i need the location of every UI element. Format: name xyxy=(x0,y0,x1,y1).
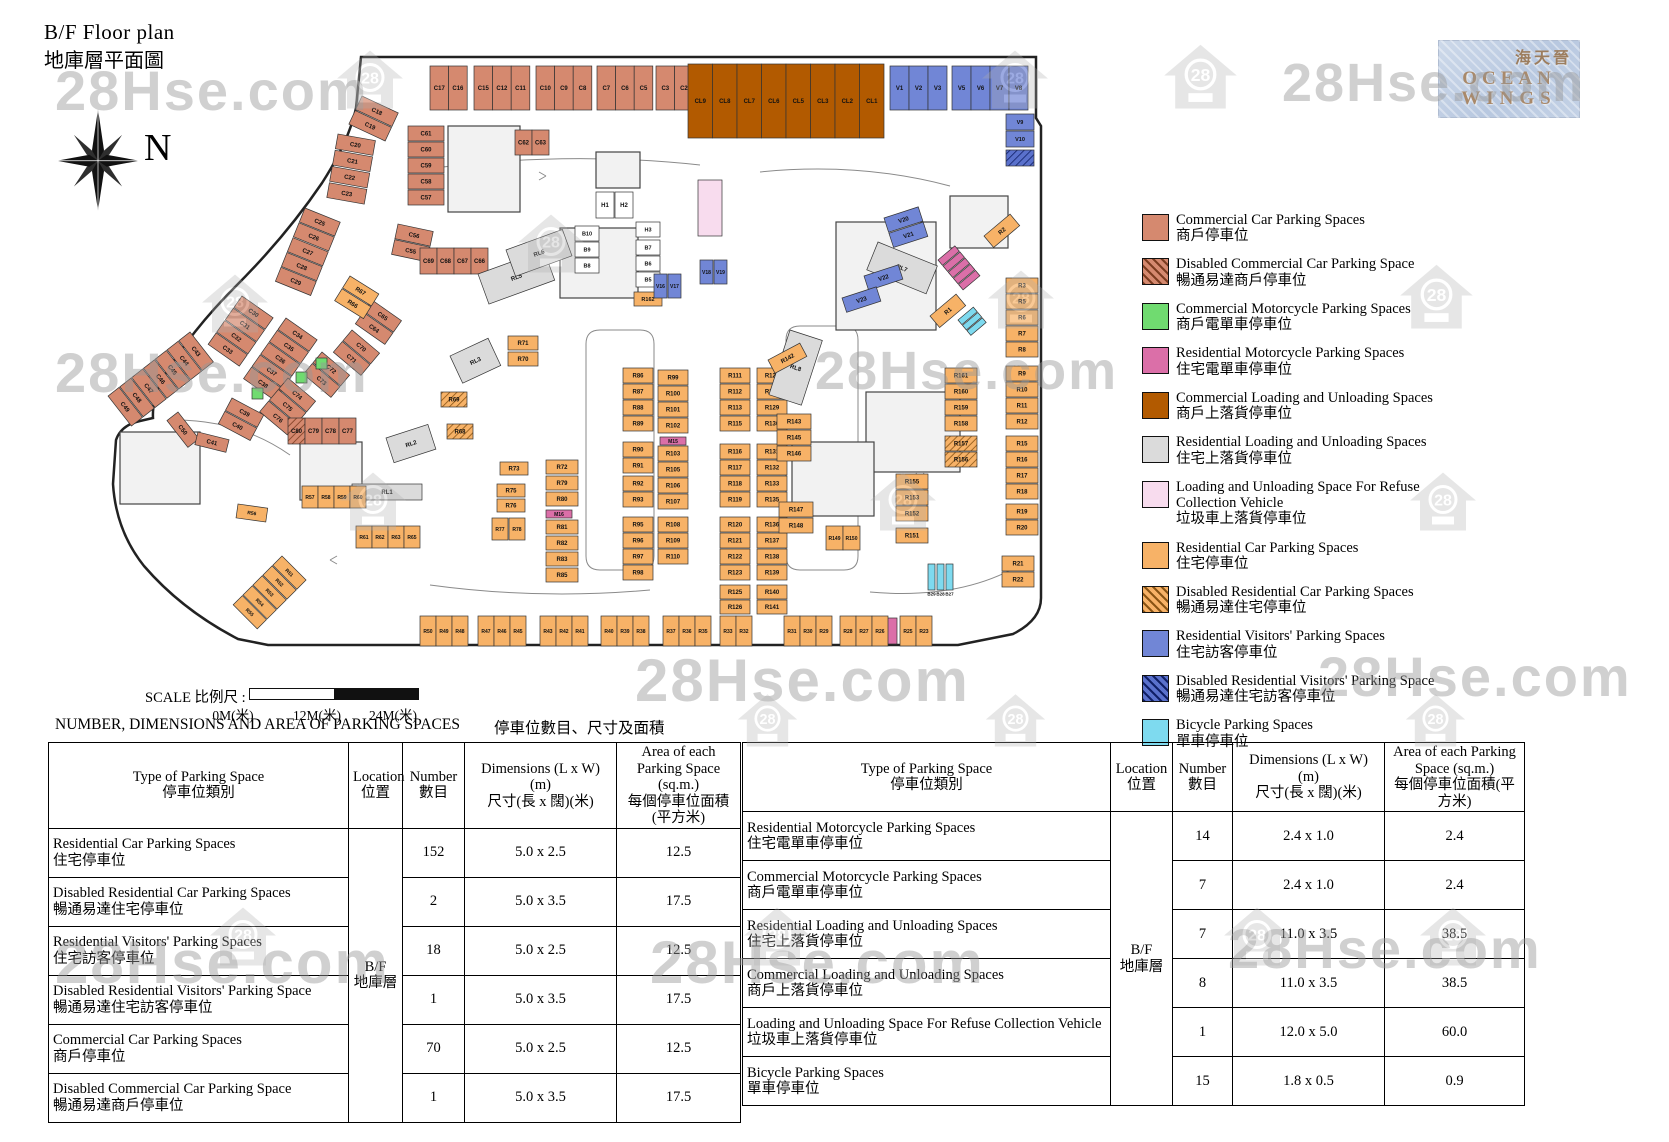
stall-group: R151 xyxy=(896,528,928,543)
stall-label: R156 xyxy=(954,458,969,464)
stall-label: R49 xyxy=(439,629,448,635)
watermark-house-icon: 28 xyxy=(1162,42,1239,116)
stall-label: CL5 xyxy=(793,99,805,105)
stall-label: R99 xyxy=(667,376,679,382)
stall-group: M16 xyxy=(546,510,572,518)
stall-group: R28R27R26 xyxy=(840,616,888,646)
cell-area: 60.0 xyxy=(1385,1008,1525,1057)
stall-group: R50R49R48 xyxy=(420,616,468,646)
development-logo: 海天晉 OCEAN WINGS xyxy=(1438,40,1580,118)
stall-label: R37 xyxy=(666,629,675,635)
stall-group: CL9CL8CL7CL6CL5CL3CL2CL1 xyxy=(688,64,884,138)
stall-label: R88 xyxy=(632,406,644,412)
parking-stall xyxy=(296,372,307,383)
parking-stall xyxy=(316,358,327,369)
col-header-type: Type of Parking Space停車位類別 xyxy=(49,743,349,829)
cell-type: Disabled Commercial Car Parking Space暢通易… xyxy=(49,1073,349,1122)
stall-label: V10 xyxy=(1015,137,1025,143)
stall-label: R96 xyxy=(632,539,644,545)
legend-swatch-icon xyxy=(1142,303,1169,330)
stall-label: R36 xyxy=(682,629,691,635)
legend-item: Disabled Residential Car Parking Spaces暢… xyxy=(1142,584,1472,616)
legend-swatch-icon xyxy=(1142,392,1169,419)
stall-label: R110 xyxy=(666,555,681,561)
stall-label: R43 xyxy=(543,629,552,635)
stall-label: R19 xyxy=(1016,510,1028,516)
stall-label: H2 xyxy=(620,203,628,209)
stall-label: R151 xyxy=(905,534,920,540)
stall-label: R48 xyxy=(455,629,464,635)
stall-label: C16 xyxy=(452,86,464,92)
page-title-en: B/F Floor plan xyxy=(44,20,175,45)
stall-label: R82 xyxy=(556,541,568,547)
cell-area: 12.5 xyxy=(617,926,741,975)
stall-label: H1 xyxy=(601,203,609,209)
stall-label: R133 xyxy=(765,482,780,488)
stall-label: R121 xyxy=(728,539,743,545)
stall-group: R143R145R146 xyxy=(777,414,811,461)
stall-label: R105 xyxy=(666,468,681,474)
stall-label: B9 xyxy=(583,247,590,253)
parking-stall xyxy=(928,564,935,590)
building-core xyxy=(596,152,640,188)
stall-label: C68 xyxy=(440,259,452,265)
stall-label: R30 xyxy=(803,629,812,635)
stall-label: R116 xyxy=(728,450,743,456)
stall-label: R38 xyxy=(636,629,645,635)
stall-label: R10 xyxy=(1016,388,1028,394)
stall-label: R145 xyxy=(787,436,802,442)
stall-group: R68 xyxy=(447,424,473,439)
stall-label: R157 xyxy=(954,442,969,448)
stall-label: R102 xyxy=(666,424,681,430)
stall-group: R108R109R110 xyxy=(658,517,688,564)
stall-label: R126 xyxy=(728,605,743,611)
legend-swatch-icon xyxy=(1142,347,1169,374)
cell-number: 18 xyxy=(403,926,465,975)
stall-label: R45 xyxy=(513,629,522,635)
cell-type: Disabled Residential Car Parking Spaces暢… xyxy=(49,877,349,926)
stall-label: B10 xyxy=(582,231,592,237)
stall-label: CL1 xyxy=(866,99,878,105)
stall-label: C6 xyxy=(621,86,629,92)
stall-label: R160 xyxy=(954,390,969,396)
stall-group: R69 xyxy=(441,392,467,407)
cell-dimensions: 5.0 x 2.5 xyxy=(465,1024,617,1073)
stall-label: R111 xyxy=(728,374,742,380)
cell-dimensions: 5.0 x 2.5 xyxy=(465,926,617,975)
stall-label: R122 xyxy=(728,555,743,561)
stall-label: V2 xyxy=(915,86,923,92)
col-header-area: Area of each Parking Space (sq.m.)每個停車位面… xyxy=(1385,743,1525,812)
logo-name-en-top: OCEAN xyxy=(1438,68,1580,90)
cell-type: Residential Car Parking Spaces住宅停車位 xyxy=(49,828,349,877)
stall-label: C58 xyxy=(420,180,432,186)
stall-label: R11 xyxy=(1017,404,1028,410)
stall-label: R81 xyxy=(556,525,568,531)
stall-label: CL8 xyxy=(719,99,731,105)
stall-label: R71 xyxy=(517,341,529,347)
parking-spaces-table: Type of Parking Space停車位類別Location位置Numb… xyxy=(742,742,1525,1106)
stall-group: C62C63 xyxy=(515,130,549,155)
stall-label: R70 xyxy=(517,357,529,363)
stall-label: V6 xyxy=(977,86,985,92)
cell-dimensions: 2.4 x 1.0 xyxy=(1233,861,1385,910)
stall-label: R5 xyxy=(1018,300,1026,306)
stall-label: C59 xyxy=(420,164,432,170)
stall-label: R77 xyxy=(495,527,504,533)
stall-group: R47R46R45 xyxy=(478,616,526,646)
cell-type: Residential Visitors' Parking Spaces住宅訪客… xyxy=(49,926,349,975)
stall-label: R29 xyxy=(819,629,828,635)
stall-label: R42 xyxy=(559,629,568,635)
stall-group: C79C78C77 xyxy=(305,418,356,444)
stall-label: R22 xyxy=(1012,578,1024,584)
stall-label: R73 xyxy=(508,467,520,473)
stall-label: R148 xyxy=(789,524,804,530)
stall-label: R138 xyxy=(765,555,780,561)
legend-label: Residential Motorcycle Parking Spaces住宅電… xyxy=(1176,345,1404,377)
stall-label: RL1 xyxy=(381,490,393,496)
legend-item: Disabled Residential Visitors' Parking S… xyxy=(1142,673,1472,705)
legend: Commercial Car Parking Spaces商戶停車位Disabl… xyxy=(1142,212,1472,762)
stall-label: R61 xyxy=(359,535,368,541)
stall-label: M15 xyxy=(668,439,678,445)
floor-plan: C17C16C15C12C11C10C9C8C7C6C5C3C2C1CL9CL8… xyxy=(105,48,1045,648)
parking-stall xyxy=(937,564,944,590)
stall-group: C17C16 xyxy=(430,66,467,110)
stall-label: B28 xyxy=(936,592,945,597)
stall-label: R120 xyxy=(728,523,743,529)
stall-label: R16 xyxy=(1016,458,1028,464)
col-header-type: Type of Parking Space停車位類別 xyxy=(743,743,1111,812)
logo-name-en-bottom: WINGS xyxy=(1438,88,1580,110)
cell-dimensions: 1.8 x 0.5 xyxy=(1233,1057,1385,1106)
cell-number: 1 xyxy=(403,1073,465,1122)
stall-label: R39 xyxy=(620,629,629,635)
stall-label: CL2 xyxy=(842,99,854,105)
stall-label: C9 xyxy=(560,86,568,92)
stall-label: R68 xyxy=(454,430,466,436)
stall-group: C61C60C59C58C57 xyxy=(408,126,444,205)
stall-group: V5V6V7V8 xyxy=(952,66,1028,110)
legend-swatch-icon xyxy=(1142,214,1169,241)
stall-label: R83 xyxy=(556,557,568,563)
stall-group: R25R23 xyxy=(900,616,932,646)
col-header-number: Number數目 xyxy=(403,743,465,829)
legend-item: Residential Car Parking Spaces住宅停車位 xyxy=(1142,540,1472,572)
stall-label: C7 xyxy=(602,86,610,92)
stall-label: R46 xyxy=(497,629,506,635)
stall-label: C17 xyxy=(434,86,446,92)
cell-area: 17.5 xyxy=(617,1073,741,1122)
cell-type: Loading and Unloading Space For Refuse C… xyxy=(743,1008,1111,1057)
stall-label: R93 xyxy=(632,498,644,504)
legend-swatch-icon xyxy=(1142,586,1169,613)
stall-label: R155 xyxy=(905,480,920,486)
cell-number: 7 xyxy=(1173,861,1233,910)
stall-label: R135 xyxy=(765,498,780,504)
parking-stall xyxy=(1006,150,1034,166)
stall-label: R78 xyxy=(512,527,521,533)
section-title-en: NUMBER, DIMENSIONS AND AREA OF PARKING S… xyxy=(55,716,460,738)
legend-item: Commercial Car Parking Spaces商戶停車位 xyxy=(1142,212,1472,244)
scale-bar xyxy=(249,688,419,700)
stall-label: C60 xyxy=(420,148,432,154)
stall-label: C77 xyxy=(342,429,354,435)
cell-number: 70 xyxy=(403,1024,465,1073)
stall-group: R57R58R59R60 xyxy=(302,486,366,508)
cell-number: 15 xyxy=(1173,1057,1233,1106)
cell-number: 152 xyxy=(403,828,465,877)
stall-label: R62 xyxy=(375,535,384,541)
stall-label: R90 xyxy=(632,448,644,454)
parking-stall xyxy=(252,388,263,399)
stall-label: C78 xyxy=(325,429,337,435)
stall-label: V17 xyxy=(670,284,679,290)
legend-label: Residential Car Parking Spaces住宅停車位 xyxy=(1176,540,1358,572)
stall-label: R18 xyxy=(1016,490,1028,496)
col-header-dimensions: Dimensions (L x W) (m)尺寸(長 x 闊)(米) xyxy=(1233,743,1385,812)
svg-text:28: 28 xyxy=(759,712,775,728)
stall-label: R109 xyxy=(666,539,681,545)
stall-label: R91 xyxy=(632,464,644,470)
stall-group xyxy=(698,180,722,236)
stall-label: C63 xyxy=(535,141,547,147)
stall-label: R31 xyxy=(787,629,796,635)
stall-label: R153 xyxy=(905,496,920,502)
cell-area: 38.5 xyxy=(1385,959,1525,1008)
parking-spaces-table: Type of Parking Space停車位類別Location位置Numb… xyxy=(48,742,741,1123)
stall-label: R15 xyxy=(1016,442,1028,448)
stall-label: R35 xyxy=(698,629,707,635)
stall-label: R72 xyxy=(556,465,568,471)
legend-label: Disabled Residential Car Parking Spaces暢… xyxy=(1176,584,1414,616)
cell-dimensions: 12.0 x 5.0 xyxy=(1233,1008,1385,1057)
stall-label: C3 xyxy=(661,86,669,92)
section-title: NUMBER, DIMENSIONS AND AREA OF PARKING S… xyxy=(55,716,664,738)
stall-group: R149R150 xyxy=(826,526,860,550)
stall-label: R60 xyxy=(353,495,362,501)
stall-label: B8 xyxy=(583,263,590,269)
stall-label: R146 xyxy=(787,452,802,458)
cell-dimensions: 5.0 x 3.5 xyxy=(465,975,617,1024)
stall-label: R150 xyxy=(846,536,858,542)
stall-label: C2 xyxy=(680,86,688,92)
cell-location: B/F地庫層 xyxy=(349,828,403,1122)
legend-item: Disabled Commercial Car Parking Space暢通易… xyxy=(1142,256,1472,288)
legend-item: Commercial Loading and Unloading Spaces商… xyxy=(1142,390,1472,422)
cell-type: Commercial Loading and Unloading Spaces商… xyxy=(743,959,1111,1008)
stall-label: R161 xyxy=(954,374,969,380)
cell-dimensions: 11.0 x 3.5 xyxy=(1233,959,1385,1008)
parking-stall xyxy=(946,564,953,590)
cell-number: 2 xyxy=(403,877,465,926)
legend-swatch-icon xyxy=(1142,630,1169,657)
stall-label: R152 xyxy=(905,512,920,518)
cell-number: 14 xyxy=(1173,812,1233,861)
cell-number: 7 xyxy=(1173,910,1233,959)
stall-label: R58 xyxy=(321,495,330,501)
stall-label: R162 xyxy=(641,297,654,303)
stall-label: R117 xyxy=(728,466,743,472)
stall-label: R108 xyxy=(666,523,681,529)
stall-label: R7 xyxy=(1018,332,1026,338)
svg-text:28: 28 xyxy=(1007,712,1023,728)
stall-label: C11 xyxy=(515,86,526,92)
cell-number: 1 xyxy=(403,975,465,1024)
parking-stall xyxy=(698,180,722,236)
cell-type: Commercial Motorcycle Parking Spaces商戶電單… xyxy=(743,861,1111,910)
stall-label: V1 xyxy=(896,86,904,92)
stall-label: C67 xyxy=(457,259,469,265)
stall-label: R56 xyxy=(247,510,257,517)
stall-group: R33R32 xyxy=(720,616,752,646)
cell-dimensions: 11.0 x 3.5 xyxy=(1233,910,1385,959)
table-row: Residential Car Parking Spaces住宅停車位B/F地庫… xyxy=(49,828,741,877)
cell-area: 2.4 xyxy=(1385,812,1525,861)
stall-label: CL7 xyxy=(744,99,756,105)
svg-text:28: 28 xyxy=(1191,65,1211,85)
stall-label: R80 xyxy=(556,497,568,503)
stall-label: R136 xyxy=(765,523,780,529)
stall-label: R106 xyxy=(666,484,681,490)
stall-label: R21 xyxy=(1012,562,1024,568)
stall-group: B10B9B8 xyxy=(575,226,599,273)
legend-label: Disabled Commercial Car Parking Space暢通易… xyxy=(1176,256,1414,288)
cell-type: Residential Motorcycle Parking Spaces住宅電… xyxy=(743,812,1111,861)
cell-area: 0.9 xyxy=(1385,1057,1525,1106)
watermark-text: 28Hse.com xyxy=(635,646,970,715)
stall-label: R41 xyxy=(575,629,584,635)
stall-label: R115 xyxy=(728,422,743,428)
stall-label: R25 xyxy=(903,629,912,635)
stall-label: R107 xyxy=(666,500,681,506)
legend-item: Residential Loading and Unloading Spaces… xyxy=(1142,434,1472,466)
stall-label: C8 xyxy=(579,86,587,92)
stall-label: B5 xyxy=(644,277,651,283)
stall-group: R40R39R38 xyxy=(601,616,649,646)
stall-label: R95 xyxy=(632,523,644,529)
stall-label: V7 xyxy=(996,86,1004,92)
stall-label: R28 xyxy=(843,629,852,635)
stall-label: H3 xyxy=(644,227,651,233)
legend-swatch-icon xyxy=(1142,675,1169,702)
stall-label: C62 xyxy=(518,141,530,147)
cell-area: 17.5 xyxy=(617,975,741,1024)
stall-group: C7C6C5 xyxy=(597,66,653,110)
stall-label: R57 xyxy=(305,495,314,501)
legend-item: Commercial Motorcycle Parking Spaces商戶電單… xyxy=(1142,301,1472,333)
parking-table-right: Type of Parking Space停車位類別Location位置Numb… xyxy=(742,742,1524,1106)
stall-label: R147 xyxy=(789,508,804,514)
stall-group: R37R36R35 xyxy=(663,616,711,646)
stall-group: C15C12C11 xyxy=(474,66,530,110)
stall-label: V16 xyxy=(656,284,665,290)
legend-label: Commercial Car Parking Spaces商戶停車位 xyxy=(1176,212,1365,244)
stall-group xyxy=(296,372,307,383)
stall-label: R112 xyxy=(728,390,743,396)
stall-group: H3 xyxy=(636,222,660,237)
stall-group: M15 xyxy=(660,437,686,445)
legend-swatch-icon xyxy=(1142,436,1169,463)
stall-group: R73 xyxy=(500,462,528,475)
cell-dimensions: 5.0 x 3.5 xyxy=(465,1073,617,1122)
stall-label: R33 xyxy=(723,629,732,635)
stall-label: R20 xyxy=(1016,526,1028,532)
stall-label: R17 xyxy=(1016,474,1028,480)
stall-label: R139 xyxy=(765,571,780,577)
col-header-location: Location位置 xyxy=(1111,743,1173,812)
col-header-area: Area of each Parking Space (sq.m.)每個停車位面… xyxy=(617,743,741,829)
stall-label: R101 xyxy=(666,408,681,414)
stall-label: R123 xyxy=(728,571,743,577)
legend-label: Disabled Residential Visitors' Parking S… xyxy=(1176,673,1434,705)
stall-label: R98 xyxy=(632,571,644,577)
stall-label: R75 xyxy=(505,489,517,495)
stall-label: R32 xyxy=(739,629,748,635)
col-header-location: Location位置 xyxy=(349,743,403,829)
stall-label: R59 xyxy=(337,495,346,501)
cell-type: Commercial Car Parking Spaces商戶停車位 xyxy=(49,1024,349,1073)
legend-label: Commercial Motorcycle Parking Spaces商戶電單… xyxy=(1176,301,1411,333)
stall-label: R87 xyxy=(632,390,644,396)
cell-area: 12.5 xyxy=(617,828,741,877)
stall-label: R125 xyxy=(728,590,743,596)
stall-label: R9 xyxy=(1018,372,1026,378)
cell-dimensions: 5.0 x 2.5 xyxy=(465,828,617,877)
stall-group xyxy=(316,358,327,369)
stall-label: B6 xyxy=(644,261,651,267)
stall-label: R89 xyxy=(632,422,644,428)
stall-label: C69 xyxy=(423,259,435,265)
section-title-zh: 停車位數目、尺寸及面積 xyxy=(494,716,665,738)
stall-label: R103 xyxy=(666,452,681,458)
stall-label: R85 xyxy=(556,573,568,579)
stall-label: C61 xyxy=(420,132,432,138)
legend-label: Residential Visitors' Parking Spaces住宅訪客… xyxy=(1176,628,1385,660)
stall-label: C5 xyxy=(640,86,648,92)
legend-label: Commercial Loading and Unloading Spaces商… xyxy=(1176,390,1433,422)
stall-label: R6 xyxy=(1018,316,1026,322)
stall-label: R3 xyxy=(1018,284,1026,290)
stall-label: C79 xyxy=(308,429,320,435)
cell-location: B/F地庫層 xyxy=(1111,812,1173,1106)
stall-group: R3R5R6R7R8 xyxy=(1006,278,1038,357)
stall-label: R40 xyxy=(604,629,613,635)
legend-swatch-icon xyxy=(1142,258,1169,285)
table-row: Residential Motorcycle Parking Spaces住宅電… xyxy=(743,812,1525,861)
stall-label: R12 xyxy=(1016,420,1028,426)
stall-label: R69 xyxy=(448,398,460,404)
stall-label: C66 xyxy=(474,259,486,265)
stall-label: C15 xyxy=(478,86,490,92)
stall-label: CL3 xyxy=(817,99,829,105)
cell-dimensions: 2.4 x 1.0 xyxy=(1233,812,1385,861)
stall-label: R129 xyxy=(765,406,780,412)
legend-label: Residential Loading and Unloading Spaces… xyxy=(1176,434,1426,466)
stall-group: R43R42R41 xyxy=(540,616,588,646)
stall-label: R140 xyxy=(765,590,780,596)
cell-number: 8 xyxy=(1173,959,1233,1008)
stall-label: R119 xyxy=(728,498,743,504)
cell-number: 1 xyxy=(1173,1008,1233,1057)
cell-dimensions: 5.0 x 3.5 xyxy=(465,877,617,926)
stall-label: R65 xyxy=(407,535,416,541)
logo-name-zh: 海天晉 xyxy=(1515,44,1572,68)
stall-label: V18 xyxy=(702,270,711,276)
stall-label: R132 xyxy=(765,466,780,472)
